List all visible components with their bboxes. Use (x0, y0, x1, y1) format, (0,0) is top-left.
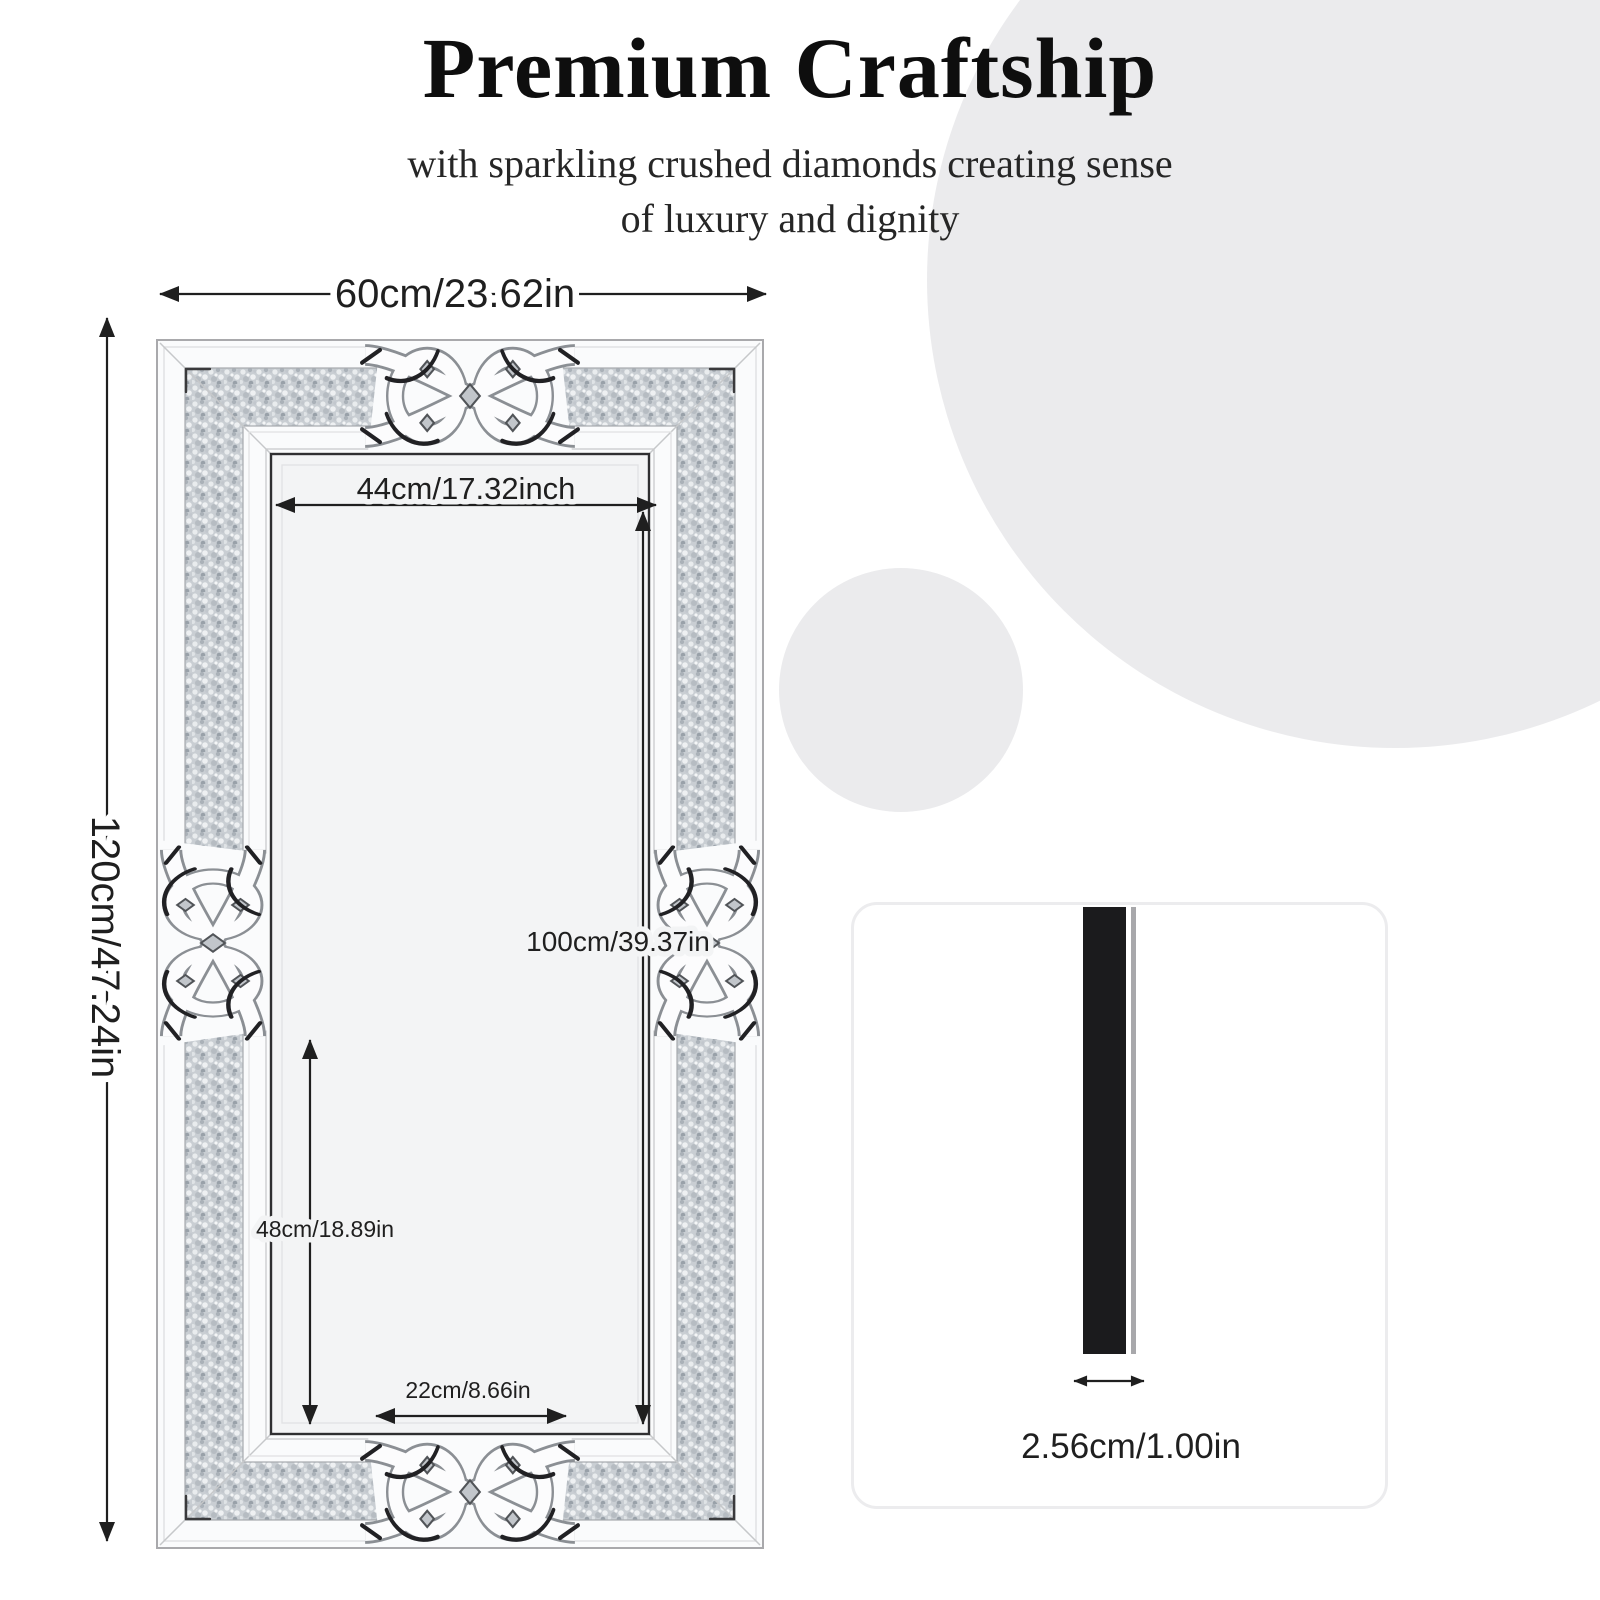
mirror-side-edge-strip (1131, 907, 1136, 1354)
mirror-dimension-diagram: 60cm/23.62in 120cm/47.24in 44cm/17.32inc… (0, 0, 820, 1600)
dimension-label-inner-height: 100cm/39.37in (526, 926, 710, 957)
mirror-side-profile-bar (1083, 907, 1126, 1354)
thickness-label: 2.56cm/1.00in (881, 1427, 1381, 1467)
dimension-label-inner-width: 44cm/17.32inch (357, 471, 576, 506)
dimension-label-outer-width: 60cm/23.62in (335, 272, 575, 316)
dimension-label-outer-height: 120cm/47.24in (83, 816, 127, 1078)
thickness-card: 2.56cm/1.00in (851, 902, 1388, 1509)
dimension-label-lower-height: 48cm/18.89in (256, 1216, 394, 1242)
thickness-arrow (1070, 1370, 1148, 1392)
dimension-label-bottom-width: 22cm/8.66in (405, 1377, 530, 1403)
